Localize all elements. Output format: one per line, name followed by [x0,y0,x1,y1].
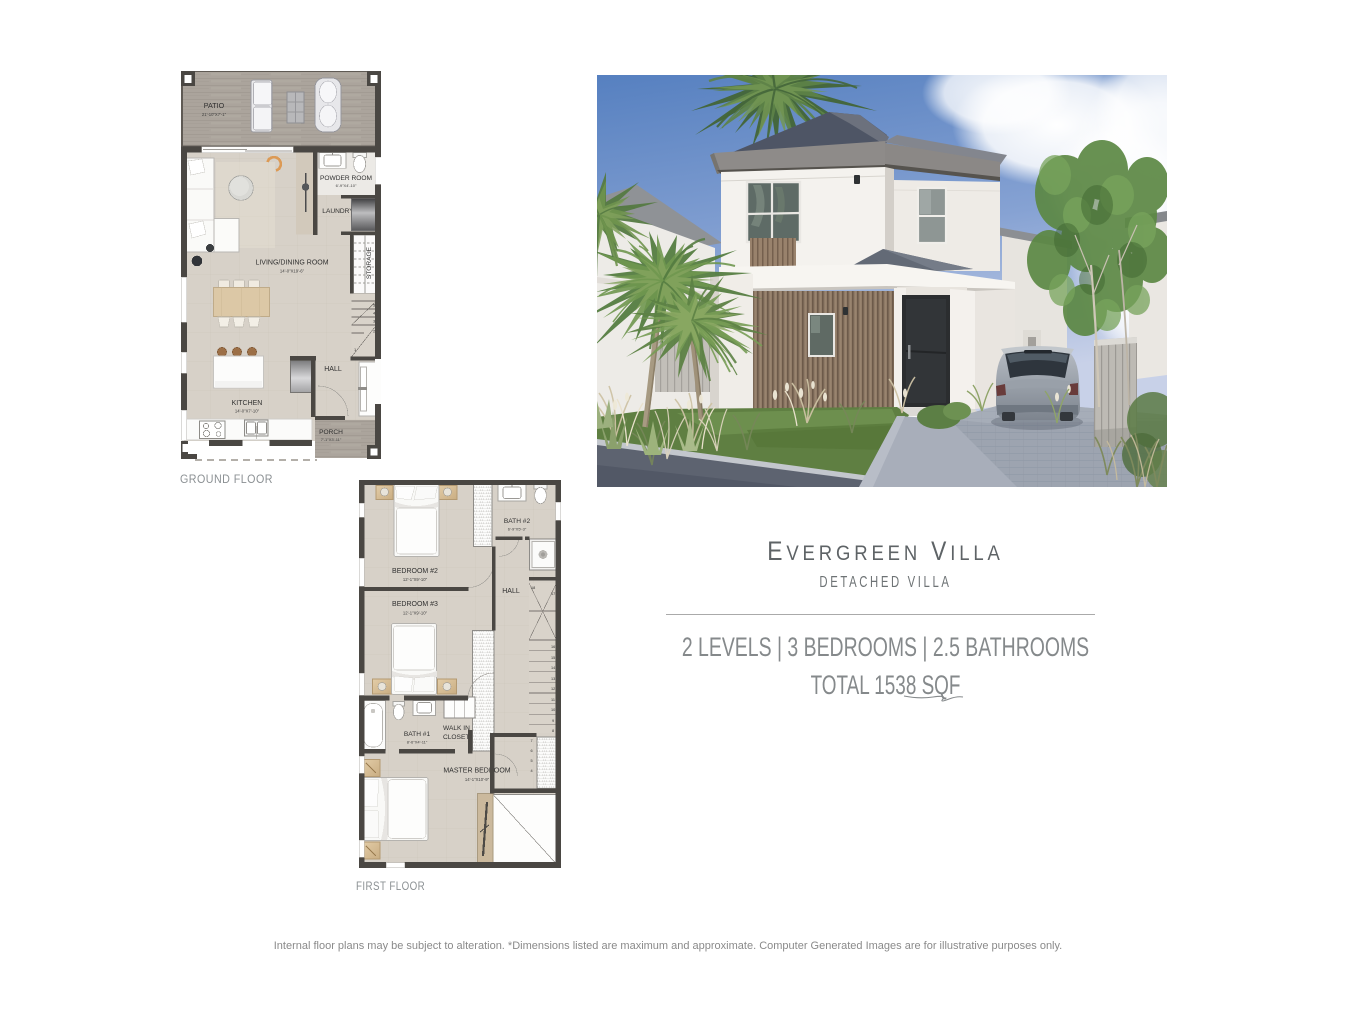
svg-text:BATH #1: BATH #1 [404,731,431,738]
svg-text:MASTER BEDROOM: MASTER BEDROOM [443,768,510,775]
svg-text:10: 10 [551,708,555,712]
svg-text:HALL: HALL [502,588,520,595]
svg-text:14'-0"X7'-10": 14'-0"X7'-10" [235,409,260,414]
svg-text:8'-6"X4'-11": 8'-6"X4'-11" [407,740,428,745]
svg-text:7'-1"X3'-11": 7'-1"X3'-11" [321,437,342,442]
svg-text:12'-1"X9'-10": 12'-1"X9'-10" [403,577,428,582]
svg-text:KITCHEN: KITCHEN [232,400,263,407]
svg-text:6'-9"X4'-10": 6'-9"X4'-10" [336,183,357,188]
svg-text:CLOSET: CLOSET [443,734,469,741]
svg-text:15: 15 [551,656,555,660]
svg-text:4: 4 [531,769,533,773]
svg-text:18: 18 [531,586,535,590]
svg-text:14'-0"X19'-6": 14'-0"X19'-6" [280,269,305,274]
svg-text:5: 5 [531,759,533,763]
svg-text:12: 12 [551,687,555,691]
svg-text:LIVING/DINING ROOM: LIVING/DINING ROOM [255,260,328,267]
svg-text:POWDER ROOM: POWDER ROOM [320,175,372,182]
svg-text:6'-9"X5'-3": 6'-9"X5'-3" [508,527,527,532]
svg-text:11: 11 [551,698,555,702]
svg-text:WALK IN: WALK IN [443,725,470,732]
svg-text:BATH #2: BATH #2 [504,518,531,525]
svg-text:17: 17 [551,592,555,596]
svg-text:BEDROOM #2: BEDROOM #2 [392,568,438,575]
svg-text:LAUNDRY: LAUNDRY [322,208,354,215]
svg-text:12'-1"X9'-10": 12'-1"X9'-10" [403,611,428,616]
svg-text:8: 8 [552,729,554,733]
svg-text:14'-1"X10'-9": 14'-1"X10'-9" [465,777,490,782]
svg-text:BEDROOM #3: BEDROOM #3 [392,601,438,608]
svg-text:9: 9 [552,719,554,723]
svg-text:13: 13 [551,677,555,681]
svg-text:21'-10"X7'-1": 21'-10"X7'-1" [202,112,227,117]
svg-text:PATIO: PATIO [204,101,225,110]
svg-text:16: 16 [551,645,555,649]
svg-text:6: 6 [531,749,533,753]
svg-text:HALL: HALL [324,366,342,373]
svg-text:7: 7 [531,739,533,743]
svg-text:STORAGE: STORAGE [366,246,373,279]
svg-text:PORCH: PORCH [319,429,343,436]
svg-text:14: 14 [551,666,555,670]
